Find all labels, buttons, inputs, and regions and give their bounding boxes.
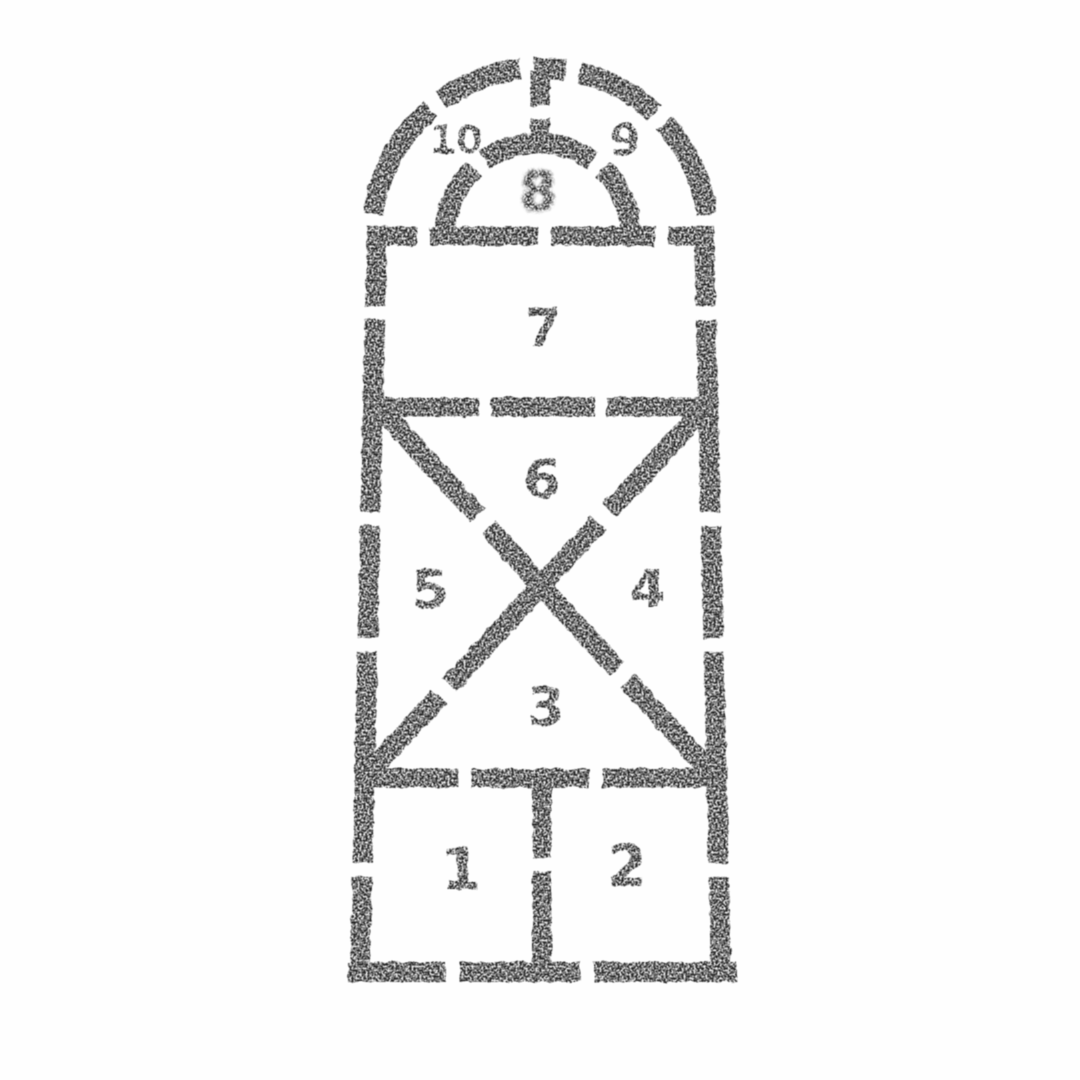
cell-8-label: 8 [519, 160, 557, 223]
cell-1-label: 1 [441, 835, 481, 903]
hopscotch-stencil-image: 1 2 3 4 5 6 7 8 9 10 [0, 0, 1080, 1080]
hopscotch-court-drawing: 1 2 3 4 5 6 7 8 9 10 [0, 0, 1080, 1080]
cell-3-label: 3 [528, 677, 565, 738]
cell-7-label: 7 [525, 298, 562, 359]
cell-10-label: 10 [430, 118, 483, 162]
cell-6-label: 6 [524, 450, 561, 511]
cell-9-label: 9 [610, 115, 641, 166]
cell-4-label: 4 [630, 559, 667, 620]
cell-5-label: 5 [412, 560, 449, 621]
cell-2-label: 2 [607, 832, 647, 900]
